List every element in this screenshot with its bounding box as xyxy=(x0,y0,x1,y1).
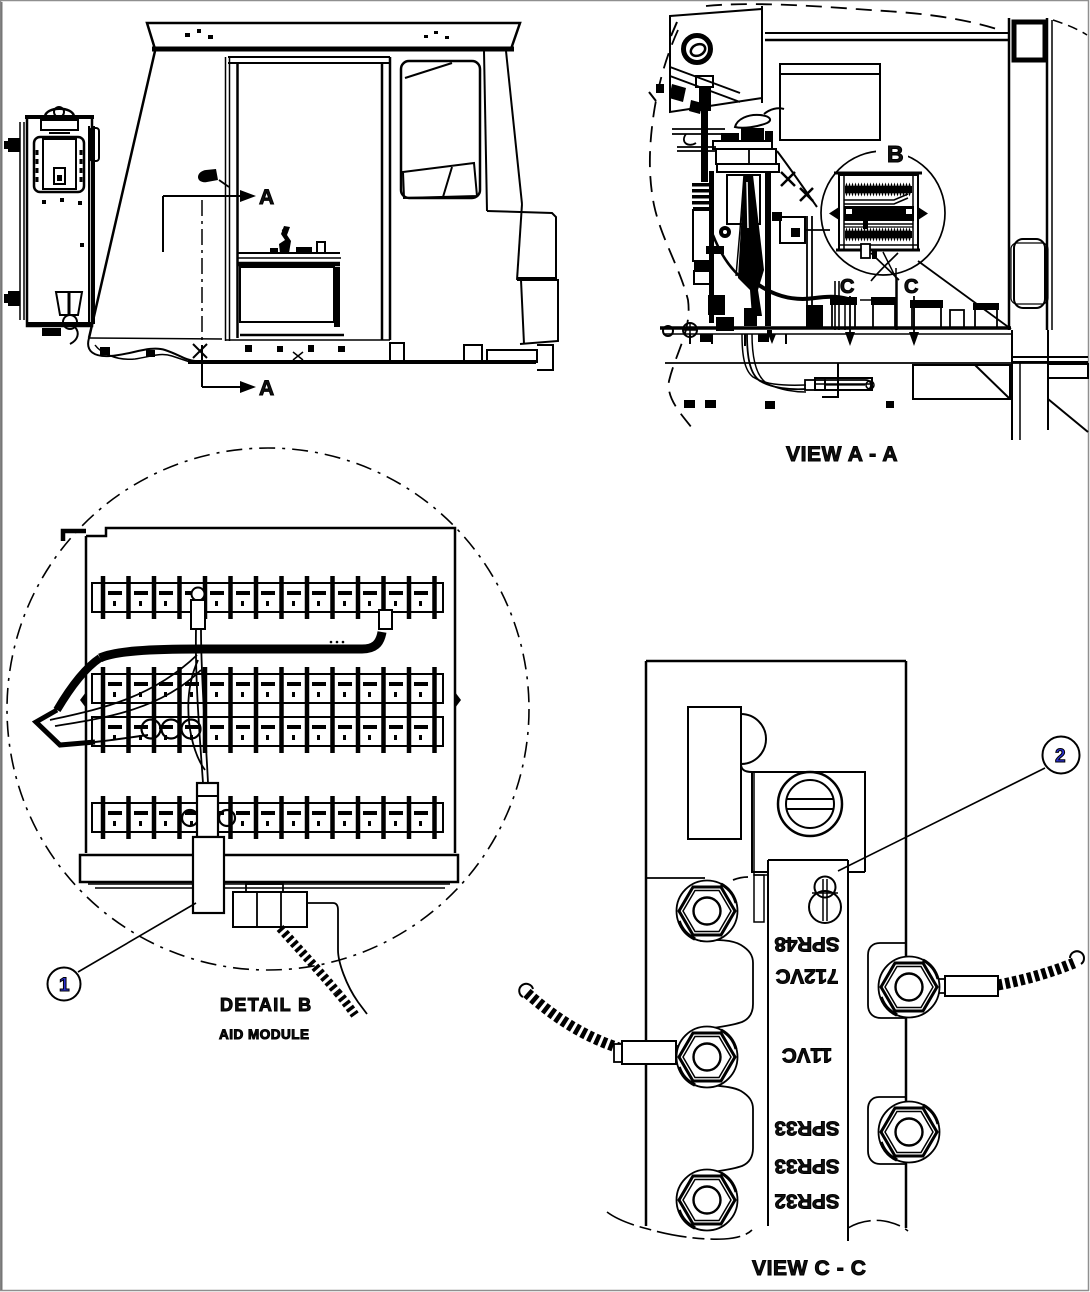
svg-text:A: A xyxy=(259,186,274,209)
svg-text:SPR48: SPR48 xyxy=(775,933,840,956)
svg-text:AID MODULE: AID MODULE xyxy=(219,1027,310,1042)
svg-text:SPR33: SPR33 xyxy=(775,1117,840,1140)
svg-text:11VC: 11VC xyxy=(782,1044,832,1067)
svg-text:1: 1 xyxy=(59,975,70,996)
svg-text:C: C xyxy=(904,276,918,298)
svg-text:2: 2 xyxy=(1055,746,1066,767)
svg-text:B: B xyxy=(887,141,904,167)
svg-text:SPR33: SPR33 xyxy=(775,1155,840,1178)
svg-text:A: A xyxy=(259,377,274,400)
svg-text:SPR32: SPR32 xyxy=(775,1190,840,1213)
svg-text:712VC: 712VC xyxy=(775,965,838,988)
svg-text:VIEW C - C: VIEW C - C xyxy=(752,1257,867,1280)
svg-text:DETAIL B: DETAIL B xyxy=(220,995,313,1015)
svg-text:VIEW A - A: VIEW A - A xyxy=(786,443,898,466)
svg-text:C: C xyxy=(840,276,854,298)
